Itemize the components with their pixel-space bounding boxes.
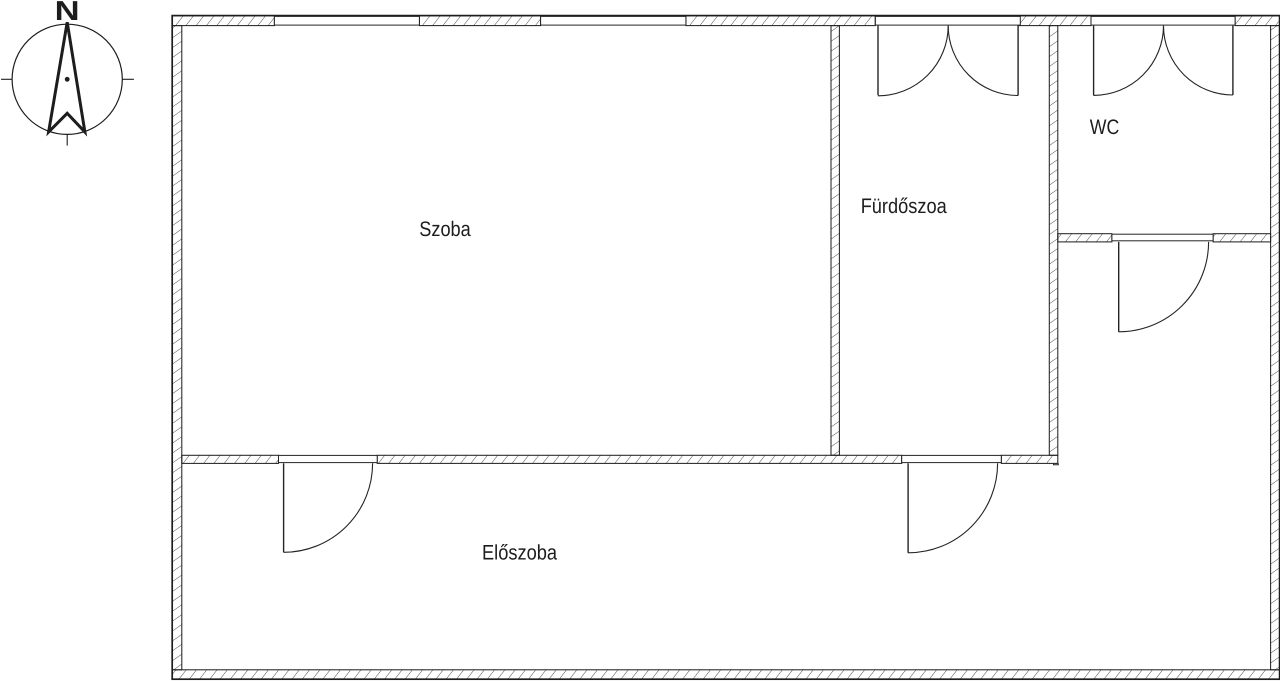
svg-text:Szoba: Szoba — [419, 218, 471, 241]
svg-text:WC: WC — [1090, 116, 1120, 139]
svg-text:Előszoba: Előszoba — [482, 542, 557, 565]
svg-text:N: N — [55, 0, 80, 26]
svg-text:Fürdőszoa: Fürdőszoa — [861, 195, 947, 218]
